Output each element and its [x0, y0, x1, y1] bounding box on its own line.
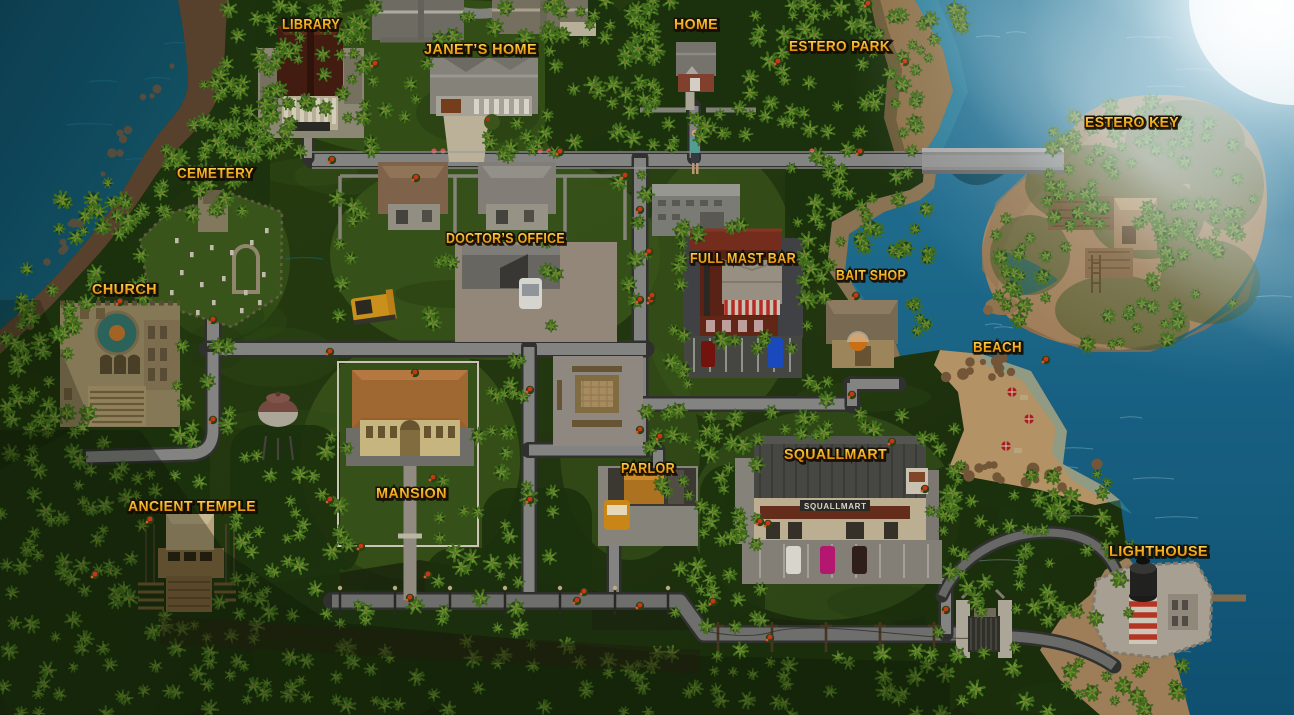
svg-text:CEMETERY: CEMETERY: [177, 166, 254, 182]
svg-text:PARLOR: PARLOR: [621, 461, 675, 477]
svg-text:LIBRARY: LIBRARY: [282, 17, 340, 33]
svg-text:BEACH: BEACH: [973, 340, 1022, 356]
svg-text:SQUALLMART: SQUALLMART: [784, 447, 887, 463]
svg-text:JANET’S HOME: JANET’S HOME: [424, 42, 537, 58]
svg-text:ESTERO KEY: ESTERO KEY: [1085, 115, 1179, 131]
svg-text:BAIT SHOP: BAIT SHOP: [836, 268, 906, 284]
svg-text:ESTERO PARK: ESTERO PARK: [789, 39, 890, 55]
svg-text:HOME: HOME: [674, 17, 718, 33]
svg-text:DOCTOR’S OFFICE: DOCTOR’S OFFICE: [446, 231, 565, 247]
svg-text:ANCIENT TEMPLE: ANCIENT TEMPLE: [128, 499, 256, 515]
svg-text:MANSION: MANSION: [376, 486, 447, 502]
svg-text:LIGHTHOUSE: LIGHTHOUSE: [1109, 544, 1208, 560]
svg-text:CHURCH: CHURCH: [92, 282, 157, 298]
svg-text:FULL MAST BAR: FULL MAST BAR: [690, 251, 796, 267]
